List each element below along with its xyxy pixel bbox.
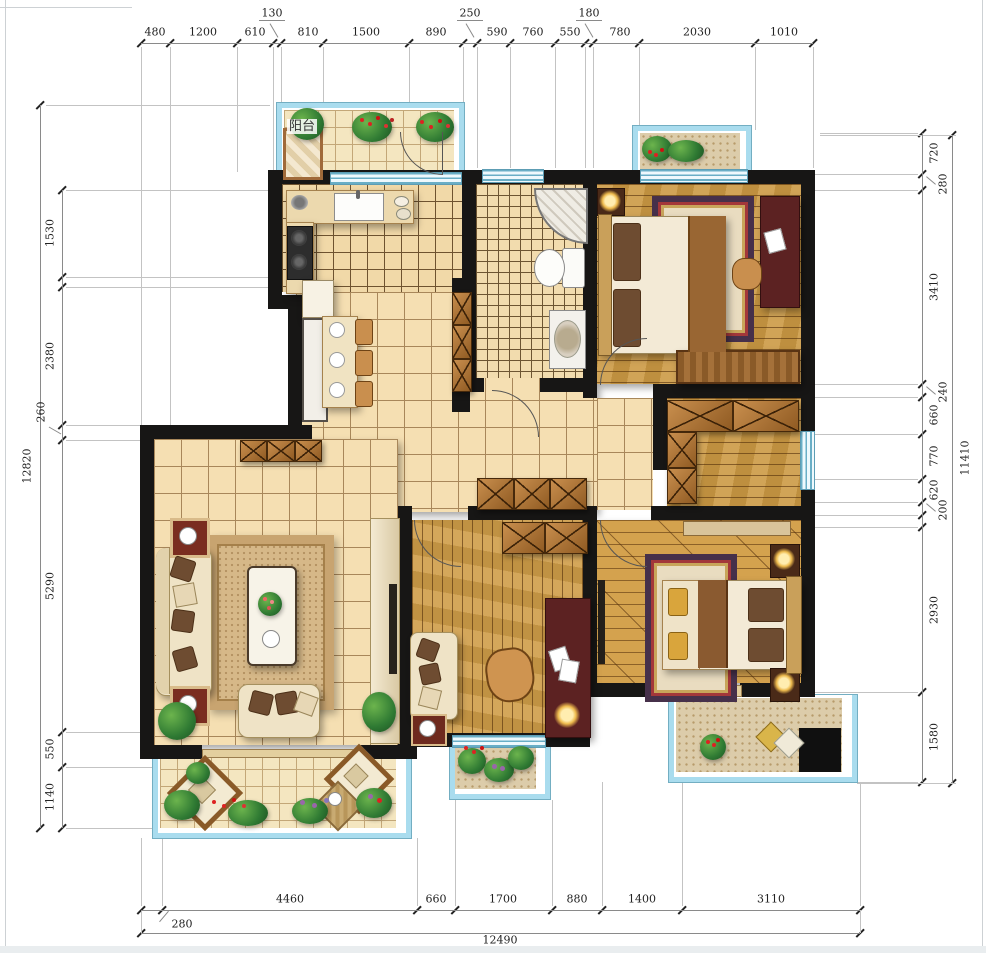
wall-left <box>140 425 154 759</box>
wardrobe-cell <box>733 400 799 432</box>
wardrobe-cell <box>667 400 733 432</box>
dim-bottom-1400: 1400 <box>628 894 656 905</box>
dim-left-260: 260 <box>36 402 47 423</box>
dim-right-200: 200 <box>938 500 949 521</box>
dim-extension-line <box>66 425 140 426</box>
living-console <box>240 440 322 462</box>
dim-top-550: 550 <box>560 27 581 38</box>
wall-living-top <box>140 425 312 439</box>
living-sofa-pillow-3 <box>171 609 196 634</box>
leader-250 <box>457 20 483 21</box>
closet-window <box>800 431 815 490</box>
dim-extension-line <box>409 47 410 108</box>
dim-left-5290: 5290 <box>45 572 56 600</box>
flowerbox-plant-1 <box>458 748 486 774</box>
dim-right-3410: 3410 <box>929 273 940 301</box>
page-edge-left <box>5 0 6 948</box>
bay-plant-2 <box>668 140 704 162</box>
living-sofa-pillow-2 <box>172 582 197 607</box>
dining-chair-1 <box>355 319 373 345</box>
living-balcony-plant-4 <box>356 788 392 818</box>
dim-extension-line <box>820 135 956 136</box>
dim-extension-line <box>820 133 918 134</box>
coffee-table-bloom <box>263 597 267 601</box>
dim-right-660: 660 <box>929 405 940 426</box>
corridor-floor <box>597 398 653 510</box>
dining-chair-2 <box>355 350 373 376</box>
stove-burner-2 <box>291 254 307 270</box>
sideboard-cell <box>514 478 551 510</box>
dim-bottom-880: 880 <box>567 894 588 905</box>
master-balcony-box <box>799 728 841 772</box>
dim-top-780: 780 <box>610 27 631 38</box>
dim-left-1530: 1530 <box>45 219 56 247</box>
dim-right-total: 11410 <box>960 441 971 476</box>
dim-top-250: 250 <box>460 8 481 19</box>
balcony-plant-2 <box>352 112 392 142</box>
dim-extension-line <box>593 47 594 168</box>
dim-extension-line <box>815 479 918 480</box>
page-edge-bottom <box>0 946 986 953</box>
dining-plate-3 <box>329 382 345 398</box>
dim-top-2030: 2030 <box>683 27 711 38</box>
dim-extension-line <box>682 782 683 906</box>
master-headboard <box>786 576 802 674</box>
dim-extension-line <box>46 105 270 106</box>
dim-right-1580: 1580 <box>929 723 940 751</box>
dim-extension-line <box>860 910 861 933</box>
cabinet-cell <box>452 325 472 358</box>
master-lamp-s <box>773 672 795 694</box>
living-balcony-plant-1 <box>164 790 200 820</box>
kitchen-dish-2 <box>396 208 411 220</box>
dim-line-left-chain <box>62 190 63 828</box>
bed1-desk-chair <box>732 258 762 290</box>
closet-wardrobe-top <box>667 400 799 432</box>
wardrobe-cell <box>502 522 545 554</box>
dim-right-240: 240 <box>938 382 949 403</box>
dim-bottom-660: 660 <box>426 894 447 905</box>
dining-tall-cabinet <box>452 292 472 392</box>
master-settee-cushion-1 <box>668 588 688 616</box>
dim-extension-line <box>804 384 918 385</box>
dim-extension-line <box>755 47 756 130</box>
dim-extension-line <box>417 838 418 906</box>
dim-right-620: 620 <box>929 480 940 501</box>
floor-plan-image: 480 1200 610 810 1500 890 590 760 550 78… <box>0 0 986 953</box>
dim-right-280: 280 <box>938 174 949 195</box>
dim-extension-line <box>141 47 142 425</box>
balcony-bloom-2 <box>420 120 424 124</box>
dim-bottom-4460: 4460 <box>276 894 304 905</box>
dim-extension-line <box>170 47 171 425</box>
wall-closet-left <box>653 384 667 470</box>
kitchen-faucet <box>356 190 360 199</box>
dim-extension-line <box>804 174 918 175</box>
dim-bottom-1700: 1700 <box>489 894 517 905</box>
dim-line-right-chain <box>922 133 923 782</box>
dim-extension-line <box>815 692 918 693</box>
living-balcony-bloom-1 <box>212 800 216 804</box>
dining-chair-3 <box>355 381 373 407</box>
dim-extension-line <box>66 828 156 829</box>
wall-bed1-bottom <box>653 384 815 398</box>
dim-extension-line <box>66 767 156 768</box>
leader-180b <box>585 23 594 37</box>
flowerbox-bloom-2 <box>492 764 497 769</box>
leader-130 <box>259 20 285 21</box>
cabinet-cell <box>452 359 472 392</box>
closet-wardrobe-left <box>667 432 697 504</box>
leader-180 <box>576 20 602 21</box>
study-desk-paper-2 <box>558 659 580 684</box>
dim-line-right-total <box>952 135 953 783</box>
dim-left-1140: 1140 <box>45 783 56 811</box>
toilet-bowl <box>534 249 565 287</box>
dim-extension-line <box>552 800 553 906</box>
wall-kitchen-left <box>268 170 282 309</box>
dim-top-130: 130 <box>262 8 283 19</box>
leader-200r <box>926 503 936 511</box>
kitchen-dish-1 <box>394 196 409 207</box>
dim-extension-line <box>66 732 140 733</box>
dim-right-770: 770 <box>929 446 940 467</box>
dim-extension-line <box>804 190 918 191</box>
living-balcony-bloom-3 <box>368 794 373 799</box>
dim-extension-line <box>273 47 274 172</box>
dim-extension-line <box>141 838 142 906</box>
coffee-table <box>247 566 297 666</box>
dim-extension-line <box>555 47 556 168</box>
balcony-label: 阳台 <box>287 119 317 134</box>
leader-250b <box>466 23 475 37</box>
dim-extension-line <box>639 47 640 130</box>
dim-right-2930: 2930 <box>929 596 940 624</box>
master-settee-cushion-2 <box>668 632 688 660</box>
leader-130b <box>270 23 279 37</box>
living-sofa-back <box>156 548 170 694</box>
wall-stub-cabinet-top <box>452 278 470 292</box>
dim-top-760: 760 <box>523 27 544 38</box>
living-plant-1 <box>158 702 196 740</box>
balcony-bloom-1 <box>360 118 364 122</box>
master-bed-blanket <box>698 580 728 668</box>
page-edge-right <box>982 0 983 948</box>
toilet-tank <box>562 248 585 288</box>
living-plant-2 <box>362 692 396 732</box>
dim-top-610: 610 <box>245 27 266 38</box>
wardrobe-cell <box>667 468 697 504</box>
study-side-table-plate <box>419 720 436 737</box>
dim-right-720: 720 <box>929 143 940 164</box>
dim-extension-line <box>602 782 603 906</box>
dim-extension-line <box>860 782 861 906</box>
end-table-plate-1 <box>179 527 197 545</box>
wall-dining-left <box>288 295 302 439</box>
dim-extension-line <box>162 838 163 906</box>
dim-top-480: 480 <box>145 27 166 38</box>
dim-line-left-total <box>40 105 41 828</box>
dim-bottom-3110: 3110 <box>757 894 785 905</box>
dim-extension-line <box>815 434 918 435</box>
dim-top-1010: 1010 <box>770 27 798 38</box>
console-cell <box>240 440 267 462</box>
living-balcony-bloom-2 <box>300 800 305 805</box>
flowerbox-plant-3 <box>508 746 534 770</box>
dim-extension-line <box>66 190 278 191</box>
balcony-door-leaf <box>442 132 443 174</box>
coffee-table-flowers <box>258 592 282 616</box>
master-balcony-plant <box>700 734 726 760</box>
tv <box>389 584 397 674</box>
dim-bottom-280: 280 <box>172 919 193 930</box>
dim-extension-line <box>813 47 814 168</box>
console-cell <box>295 440 322 462</box>
dim-extension-line <box>804 527 918 528</box>
dim-extension-line <box>237 47 238 172</box>
wardrobe-cell <box>545 522 588 554</box>
bed1-bench <box>676 350 800 384</box>
master-pillow-2 <box>748 628 784 662</box>
dim-top-810: 810 <box>298 27 319 38</box>
living-balcony-plant-5 <box>186 762 210 784</box>
dim-left-550: 550 <box>45 739 56 760</box>
dim-top-1500: 1500 <box>352 27 380 38</box>
dim-extension-line <box>585 47 586 168</box>
dim-extension-line <box>477 47 478 168</box>
sideboard-cell <box>477 478 514 510</box>
dim-bottom-total: 12490 <box>483 935 518 946</box>
bay-window-line <box>640 169 748 183</box>
master-balcony-bloom <box>706 740 710 744</box>
dim-extension-line <box>455 800 456 906</box>
wall-closet-bottom-b <box>651 506 815 520</box>
dim-extension-line <box>66 287 270 288</box>
dim-top-590: 590 <box>487 27 508 38</box>
wall-stub-cabinet-bottom <box>452 392 470 412</box>
dim-extension-line <box>141 910 142 933</box>
cabinet-cell <box>452 292 472 325</box>
balcony-table-plate <box>328 792 342 806</box>
study-wardrobe <box>502 522 588 554</box>
bathroom-window <box>482 169 544 183</box>
dining-service-counter <box>302 280 334 318</box>
dining-plate-1 <box>329 322 345 338</box>
bed1-headboard <box>598 214 612 356</box>
study-sofa-pillow-2 <box>418 662 442 686</box>
console-cell <box>267 440 294 462</box>
coffee-table-tray <box>262 630 280 648</box>
living-balcony-plant-3 <box>292 798 328 824</box>
dim-left-total: 12820 <box>22 449 33 484</box>
bay-bloom <box>648 150 652 154</box>
master-pillow-1 <box>748 588 784 622</box>
kitchen-bowl <box>291 195 308 210</box>
page-edge-top-stub <box>0 7 132 8</box>
dim-extension-line <box>323 47 324 108</box>
bed1-desk <box>760 196 800 308</box>
dining-plate-2 <box>329 352 345 368</box>
wardrobe-cell <box>667 432 697 468</box>
dim-extension-line <box>66 277 270 278</box>
hall-sideboard <box>477 478 587 510</box>
dim-extension-line <box>857 783 956 784</box>
master-lamp-n <box>773 548 795 570</box>
master-dresser <box>683 521 791 536</box>
leader-280r <box>926 176 936 184</box>
dim-left-2380: 2380 <box>45 342 56 370</box>
dim-extension-line <box>510 47 511 168</box>
study-desk-lamp <box>554 702 580 728</box>
bed1-blanket <box>688 216 726 352</box>
leader-240r <box>926 386 936 394</box>
flowerbox-bloom-1 <box>464 746 468 750</box>
bed1-lamp <box>599 190 621 212</box>
sideboard-cell <box>550 478 587 510</box>
bed1-pillow-1 <box>613 223 641 281</box>
stove-burner-1 <box>291 230 307 246</box>
dim-extension-line <box>804 502 918 503</box>
vanity-basin <box>554 320 581 358</box>
dim-extension-line <box>804 397 918 398</box>
dim-extension-line <box>804 515 918 516</box>
master-tv <box>598 580 605 664</box>
dim-top-180: 180 <box>579 8 600 19</box>
leader-280b <box>159 911 169 922</box>
dim-top-890: 890 <box>426 27 447 38</box>
living-balcony-threshold <box>202 749 360 758</box>
dim-line-top <box>141 43 813 44</box>
wall-study-top-a <box>398 506 412 520</box>
dim-extension-line <box>66 440 140 441</box>
dim-top-1200: 1200 <box>189 27 217 38</box>
living-balcony-plant-2 <box>228 800 268 826</box>
dim-line-bottom-chain <box>141 910 860 911</box>
